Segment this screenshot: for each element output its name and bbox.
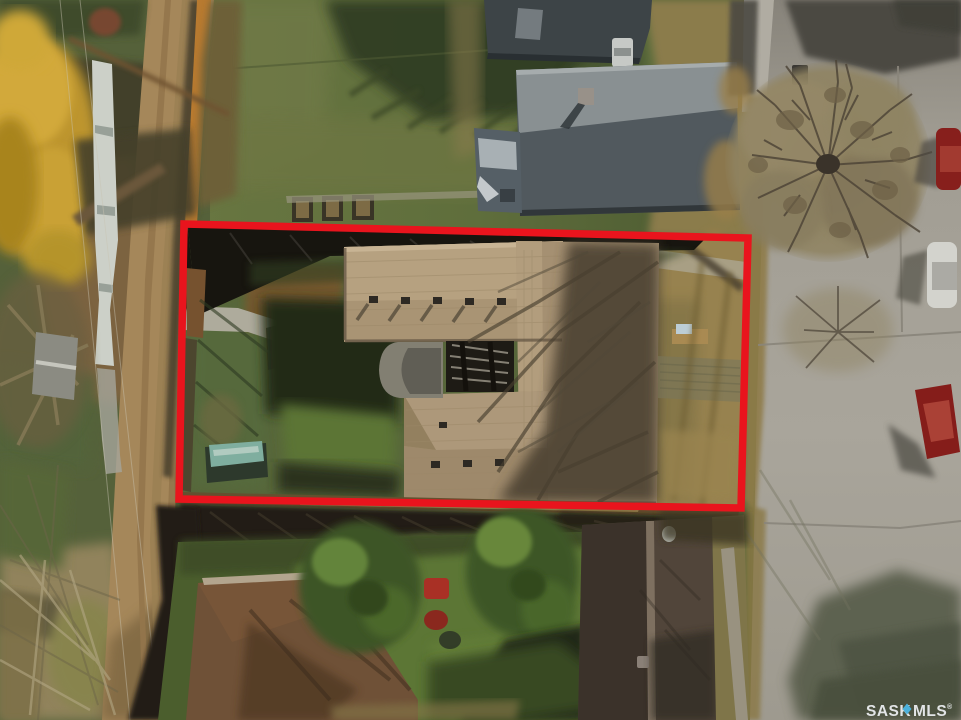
svg-text:®: ® [947, 703, 953, 711]
svg-text:MLS: MLS [913, 703, 947, 720]
